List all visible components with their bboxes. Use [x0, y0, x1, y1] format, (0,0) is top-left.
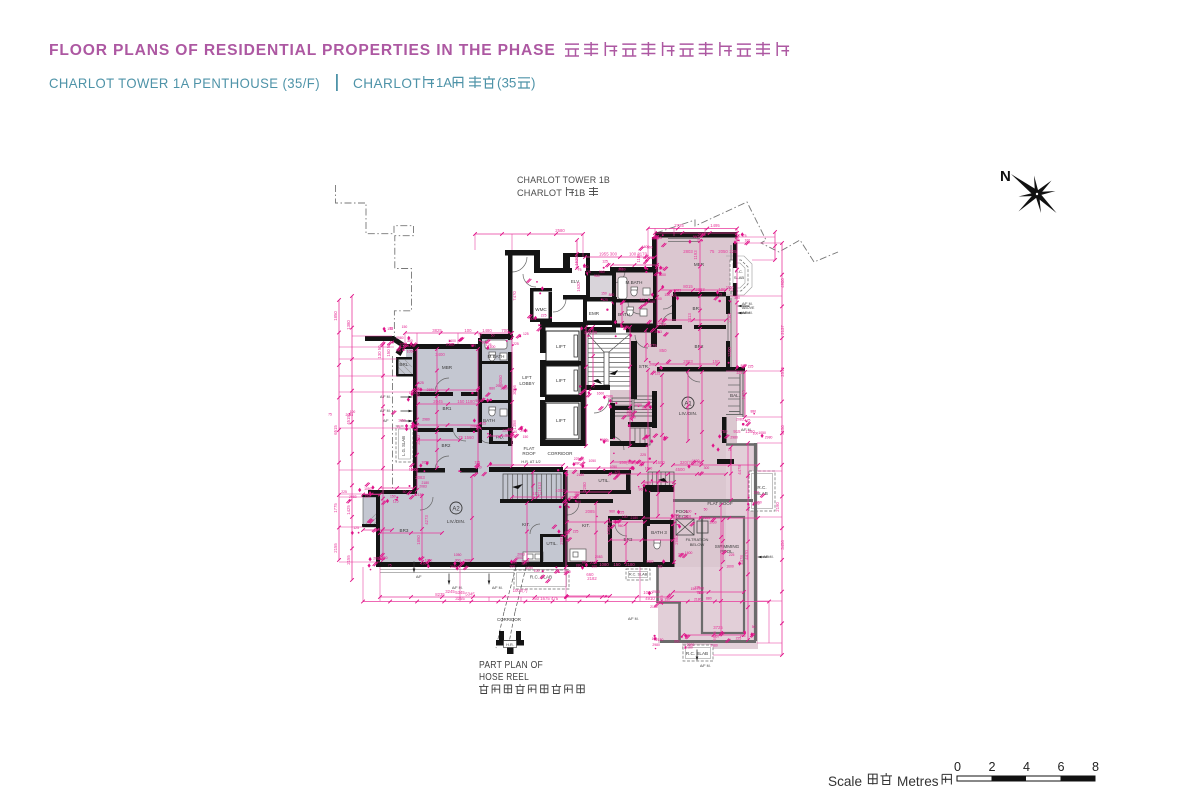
svg-text:50: 50 [704, 507, 708, 511]
svg-text:880: 880 [575, 461, 581, 465]
svg-text:Metres: Metres [897, 774, 939, 789]
svg-text:PART PLAN OF: PART PLAN OF [479, 660, 543, 671]
svg-text:125: 125 [671, 294, 677, 298]
svg-text:2980: 2980 [652, 590, 660, 594]
svg-text:2083: 2083 [590, 561, 598, 565]
svg-text:1050: 1050 [526, 566, 534, 570]
svg-text:1050: 1050 [589, 459, 597, 463]
svg-text:1050: 1050 [409, 391, 417, 395]
svg-text:75: 75 [478, 333, 482, 337]
svg-text:2155: 2155 [346, 555, 351, 565]
svg-text:2180: 2180 [648, 300, 656, 304]
svg-text:300: 300 [704, 466, 710, 470]
svg-text:300: 300 [407, 339, 413, 343]
svg-text:1000(?): 1000(?) [513, 588, 528, 593]
svg-text:75: 75 [328, 413, 332, 417]
svg-text:1850: 1850 [416, 535, 421, 545]
svg-text:225: 225 [729, 249, 737, 254]
svg-text:1050: 1050 [758, 431, 766, 435]
svg-text:2980: 2980 [496, 384, 504, 388]
svg-text:R.C.: R.C. [757, 485, 766, 490]
svg-text:MBR: MBR [442, 365, 453, 370]
svg-text:STR.: STR. [639, 364, 649, 369]
svg-text:N: N [1000, 168, 1011, 185]
svg-text:1913: 1913 [537, 482, 542, 492]
svg-text:225: 225 [480, 422, 486, 426]
svg-text:1600: 1600 [642, 245, 650, 249]
svg-text:150: 150 [658, 267, 664, 271]
svg-text:225: 225 [513, 342, 519, 346]
svg-text:2: 2 [989, 760, 996, 774]
svg-text:960: 960 [640, 298, 646, 302]
svg-text:880: 880 [674, 513, 680, 517]
svg-text:150: 150 [664, 598, 670, 602]
svg-text:225: 225 [573, 529, 579, 533]
svg-text:1050: 1050 [398, 419, 406, 423]
svg-text:1050: 1050 [425, 559, 433, 563]
svg-text:880: 880 [489, 387, 495, 391]
svg-text:LIV./DIN.: LIV./DIN. [447, 519, 465, 524]
svg-text:50: 50 [658, 564, 663, 569]
svg-text:1600: 1600 [726, 565, 734, 569]
svg-text:A/F M.: A/F M. [492, 586, 503, 590]
svg-text:3825: 3825 [432, 328, 442, 333]
svg-text:1050: 1050 [364, 487, 372, 491]
svg-text:850: 850 [659, 348, 667, 353]
svg-text:1620: 1620 [576, 282, 581, 292]
svg-text:125: 125 [486, 343, 492, 347]
svg-text:Scale: Scale [828, 774, 862, 789]
svg-text:BR2: BR2 [442, 443, 451, 448]
svg-text:ABOVE: ABOVE [742, 306, 755, 310]
svg-text:1480: 1480 [482, 328, 492, 333]
svg-text:H.R. AT 1/2: H.R. AT 1/2 [521, 460, 540, 464]
svg-text:50: 50 [752, 625, 756, 629]
svg-text:50: 50 [505, 434, 509, 438]
svg-text:100: 100 [350, 410, 356, 414]
svg-text:125: 125 [523, 332, 529, 336]
svg-text:CHARLOT: CHARLOT [517, 188, 562, 198]
svg-text:100: 100 [656, 297, 662, 301]
svg-text:75: 75 [718, 293, 722, 297]
svg-text:2183: 2183 [727, 313, 732, 323]
svg-text:125: 125 [602, 298, 608, 302]
svg-text:1413: 1413 [687, 313, 692, 323]
svg-text:2083: 2083 [595, 555, 603, 559]
svg-text:BR1: BR1 [443, 406, 452, 411]
svg-text:75: 75 [575, 267, 579, 271]
svg-text:75: 75 [591, 384, 595, 388]
svg-text:50: 50 [619, 267, 623, 271]
svg-text:960: 960 [475, 399, 481, 403]
svg-text:2983: 2983 [695, 287, 705, 292]
svg-text:75: 75 [630, 460, 634, 464]
svg-text:2980: 2980 [730, 436, 738, 440]
svg-text:880: 880 [706, 596, 712, 600]
svg-text:HOSE REEL: HOSE REEL [479, 672, 529, 683]
svg-text:4478: 4478 [737, 465, 742, 475]
svg-text:CHARLOT TOWER 1B: CHARLOT TOWER 1B [517, 175, 610, 185]
svg-text:BATH 3: BATH 3 [651, 530, 667, 535]
svg-text:960: 960 [639, 488, 645, 492]
svg-text:880: 880 [751, 409, 757, 413]
svg-text:2580: 2580 [555, 228, 565, 233]
svg-text:2045: 2045 [433, 399, 443, 404]
svg-text:2083: 2083 [464, 558, 472, 562]
svg-text:2980: 2980 [396, 336, 404, 340]
svg-text:250 1675 475: 250 1675 475 [532, 596, 559, 601]
svg-text:0: 0 [954, 760, 961, 774]
svg-text:R.C.: R.C. [735, 269, 743, 274]
svg-text:880: 880 [609, 293, 615, 297]
svg-text:960: 960 [575, 500, 581, 504]
svg-text:4910: 4910 [645, 596, 655, 601]
svg-text:4900: 4900 [780, 278, 785, 288]
svg-text:125: 125 [353, 526, 359, 530]
svg-text:H.R.: H.R. [506, 643, 514, 647]
svg-text:LIFT: LIFT [556, 378, 566, 384]
svg-text:2980: 2980 [674, 535, 679, 545]
svg-text:75: 75 [397, 349, 401, 353]
svg-text:EMR: EMR [589, 311, 600, 316]
svg-text:2083: 2083 [621, 325, 629, 329]
svg-text:2150: 2150 [780, 425, 785, 435]
svg-text:75: 75 [743, 234, 747, 238]
svg-text:225: 225 [640, 453, 646, 457]
svg-text:150: 150 [664, 293, 670, 297]
svg-text:A/F M.: A/F M. [380, 409, 391, 413]
svg-text:75: 75 [397, 425, 401, 429]
svg-text:100: 100 [534, 569, 540, 573]
svg-text:2050: 2050 [718, 249, 728, 254]
svg-text:50: 50 [403, 490, 407, 494]
svg-text:1850: 1850 [333, 311, 338, 321]
svg-text:225: 225 [656, 236, 662, 240]
svg-text:300: 300 [674, 639, 680, 643]
svg-text:915: 915 [733, 429, 741, 434]
svg-text:A/F M.: A/F M. [380, 395, 391, 399]
svg-text:LIFT: LIFT [522, 375, 532, 380]
svg-text:2190: 2190 [775, 502, 780, 512]
svg-text:2180: 2180 [577, 473, 585, 477]
svg-text:CHARLOT TOWER 1A PENTHOUSE (3: CHARLOT TOWER 1A PENTHOUSE (35/F) [49, 76, 320, 91]
svg-text:BRL.: BRL. [399, 362, 409, 367]
svg-text:225: 225 [574, 457, 580, 461]
svg-text:2083: 2083 [736, 418, 744, 422]
svg-text:8235: 8235 [435, 592, 445, 597]
svg-text:FLOOR PLANS OF RESIDENTIAL PRO: FLOOR PLANS OF RESIDENTIAL PROPERTIES IN… [49, 42, 556, 59]
svg-text:960: 960 [599, 270, 605, 274]
svg-text:2280: 2280 [582, 482, 587, 492]
svg-text:2100: 2100 [727, 347, 732, 357]
svg-text:2083: 2083 [349, 495, 357, 499]
svg-text:960: 960 [471, 343, 477, 347]
svg-text:225: 225 [642, 407, 648, 411]
svg-text:KIT.: KIT. [522, 522, 530, 527]
svg-text:75: 75 [728, 448, 732, 452]
svg-text:CORRIDOR: CORRIDOR [497, 617, 521, 622]
svg-text:1600: 1600 [684, 510, 692, 514]
svg-text:UTIL.: UTIL. [546, 541, 557, 546]
svg-text:125: 125 [602, 260, 608, 264]
svg-text:2180: 2180 [427, 388, 435, 392]
svg-text:225: 225 [697, 239, 703, 243]
svg-text:100: 100 [591, 564, 597, 568]
svg-text:5345: 5345 [455, 590, 465, 595]
svg-text:R.C. SLAB: R.C. SLAB [629, 573, 648, 577]
svg-text:150: 150 [622, 515, 628, 519]
svg-text:300: 300 [510, 565, 516, 569]
svg-text:880: 880 [741, 364, 747, 368]
svg-text:LOBBY: LOBBY [519, 381, 534, 386]
svg-text:150: 150 [691, 587, 697, 591]
svg-text:2982: 2982 [559, 535, 564, 545]
svg-text:1105: 1105 [636, 253, 641, 263]
svg-text:6515: 6515 [333, 425, 338, 435]
svg-text:8: 8 [1092, 760, 1099, 774]
svg-text:4500: 4500 [675, 467, 685, 472]
svg-text:125: 125 [655, 372, 661, 376]
svg-text:A2: A2 [452, 507, 460, 513]
svg-text:1B: 1B [574, 188, 585, 198]
svg-text:2180: 2180 [631, 516, 639, 520]
svg-text:225: 225 [740, 634, 746, 638]
svg-text:125: 125 [585, 270, 591, 274]
svg-text:2980: 2980 [652, 643, 660, 647]
svg-text:125: 125 [418, 381, 424, 385]
svg-text:150: 150 [365, 495, 371, 499]
svg-text:150: 150 [601, 292, 607, 296]
svg-text:2083: 2083 [470, 425, 478, 429]
svg-text:2083: 2083 [446, 342, 454, 346]
svg-text:): ) [531, 76, 535, 91]
svg-text:3400: 3400 [435, 352, 445, 357]
svg-text:2155: 2155 [333, 543, 338, 553]
svg-text:300: 300 [734, 296, 740, 300]
svg-text:2180: 2180 [416, 493, 424, 497]
svg-text:9150: 9150 [416, 387, 421, 397]
svg-text:300: 300 [455, 558, 461, 562]
svg-text:CHARLOT: CHARLOT [353, 76, 421, 91]
svg-text:BR3: BR3 [400, 528, 409, 533]
svg-text:1600: 1600 [684, 515, 692, 519]
svg-text:2510: 2510 [780, 367, 785, 377]
svg-text:2083: 2083 [404, 344, 412, 348]
svg-text:4: 4 [1023, 760, 1030, 774]
svg-text:3180: 3180 [416, 435, 421, 445]
svg-text:L.G. SLAB: L.G. SLAB [401, 436, 406, 456]
svg-text:150 50: 150 50 [386, 343, 391, 357]
svg-text:1600: 1600 [597, 392, 605, 396]
svg-text:LIFT: LIFT [556, 418, 566, 424]
svg-text:960: 960 [609, 510, 615, 514]
svg-text:1600: 1600 [645, 467, 653, 471]
svg-text:4380: 4380 [606, 525, 611, 535]
svg-text:1050: 1050 [407, 349, 415, 353]
svg-text:150: 150 [712, 359, 720, 364]
svg-text:2980: 2980 [605, 395, 613, 399]
svg-text:2980: 2980 [687, 643, 695, 647]
svg-text:UTIL.: UTIL. [598, 478, 609, 483]
svg-text:(35: (35 [497, 76, 516, 91]
svg-text:150: 150 [613, 562, 621, 567]
svg-text:1080: 1080 [599, 562, 609, 567]
svg-text:3725: 3725 [713, 625, 723, 630]
svg-text:2083: 2083 [584, 331, 592, 335]
svg-text:CORRIDOR: CORRIDOR [547, 451, 573, 456]
svg-text:960: 960 [594, 274, 600, 278]
svg-text:BAL.: BAL. [730, 393, 740, 398]
svg-text:1380: 1380 [346, 320, 351, 330]
svg-text:225: 225 [729, 553, 735, 557]
svg-text:1775: 1775 [333, 503, 338, 513]
svg-text:750: 750 [720, 429, 728, 434]
svg-text:150: 150 [390, 495, 396, 499]
svg-text:1050: 1050 [610, 465, 618, 469]
svg-text:150: 150 [402, 325, 408, 329]
svg-text:4273: 4273 [424, 515, 429, 525]
svg-text:2083: 2083 [419, 485, 427, 489]
svg-text:2980: 2980 [422, 417, 430, 421]
svg-text:50: 50 [491, 333, 495, 337]
svg-text:100: 100 [753, 432, 759, 436]
svg-text:1495: 1495 [710, 223, 720, 228]
svg-text:A/F M.: A/F M. [700, 664, 711, 668]
svg-text:2180: 2180 [659, 322, 667, 326]
svg-text:130 50: 130 50 [377, 345, 382, 359]
svg-text:2083: 2083 [415, 475, 425, 480]
svg-text:5345: 5345 [465, 592, 475, 597]
svg-text:3456: 3456 [780, 540, 785, 550]
svg-text:225: 225 [541, 314, 547, 318]
svg-text:2085: 2085 [585, 509, 595, 514]
svg-text:1193: 1193 [693, 250, 698, 260]
svg-text:SLAB: SLAB [734, 275, 745, 280]
svg-text:2180: 2180 [710, 644, 718, 648]
svg-text:2980: 2980 [697, 587, 705, 591]
svg-text:2980: 2980 [765, 435, 773, 439]
svg-text:150: 150 [512, 430, 518, 434]
svg-text:BATH: BATH [618, 312, 630, 317]
svg-text:LIFT: LIFT [556, 344, 566, 350]
svg-text:150: 150 [754, 490, 760, 494]
svg-text:2883: 2883 [683, 359, 693, 364]
svg-text:A/F: A/F [416, 575, 422, 579]
svg-text:1A: 1A [436, 75, 452, 90]
svg-text:225: 225 [737, 371, 743, 375]
svg-text:100: 100 [464, 328, 472, 333]
svg-text:BR3: BR3 [624, 537, 633, 542]
svg-text:1600: 1600 [685, 551, 693, 555]
svg-text:2180: 2180 [694, 597, 702, 601]
svg-text:150: 150 [387, 327, 393, 331]
svg-text:960: 960 [646, 559, 654, 564]
svg-text:75: 75 [710, 249, 715, 254]
svg-text:3245: 3245 [445, 589, 455, 594]
svg-text:1955 300: 1955 300 [599, 252, 618, 257]
svg-text:1425: 1425 [346, 505, 351, 515]
svg-text:7470: 7470 [512, 291, 517, 301]
svg-text:75: 75 [593, 331, 597, 335]
svg-text:A/F M.: A/F M. [628, 617, 639, 621]
svg-text:1083: 1083 [555, 488, 565, 493]
svg-text:A/F: A/F [383, 419, 389, 423]
svg-text:2803: 2803 [683, 249, 693, 254]
svg-text:WMC: WMC [535, 307, 547, 312]
svg-text:660: 660 [586, 572, 594, 577]
svg-text:300: 300 [698, 591, 704, 595]
svg-text:2083: 2083 [649, 362, 657, 366]
svg-text:75 1560: 75 1560 [458, 435, 474, 440]
svg-text:2180: 2180 [625, 562, 635, 567]
svg-text:8015: 8015 [683, 284, 693, 289]
svg-text:150: 150 [523, 435, 529, 439]
svg-text:1075: 1075 [647, 343, 657, 348]
svg-text:1600: 1600 [703, 516, 711, 520]
svg-text:2180: 2180 [422, 481, 430, 485]
svg-text:1050: 1050 [454, 553, 462, 557]
svg-text:3255: 3255 [455, 596, 465, 601]
svg-text:ROOF: ROOF [522, 451, 535, 456]
svg-text:1520: 1520 [574, 256, 579, 266]
svg-text:75: 75 [388, 563, 392, 567]
svg-text:1600: 1600 [409, 468, 417, 472]
svg-text:960: 960 [714, 635, 720, 639]
svg-text:150 1180: 150 1180 [457, 399, 475, 404]
svg-text:4470: 4470 [744, 550, 749, 560]
svg-text:1050: 1050 [726, 285, 734, 289]
svg-text:MBR: MBR [694, 262, 705, 267]
svg-text:M.BATH: M.BATH [487, 354, 504, 359]
svg-text:1050: 1050 [634, 403, 642, 407]
svg-text:2137: 2137 [780, 325, 785, 335]
svg-text:1425: 1425 [741, 390, 746, 400]
svg-text:960: 960 [618, 524, 624, 528]
svg-text:880: 880 [576, 564, 582, 568]
svg-text:KIT.: KIT. [582, 523, 590, 528]
svg-text:6: 6 [1058, 760, 1065, 774]
svg-text:2725: 2725 [674, 223, 684, 228]
svg-text:M.BATH: M.BATH [625, 280, 642, 285]
svg-text:225: 225 [341, 490, 347, 494]
svg-text:225: 225 [748, 365, 754, 369]
svg-text:2980: 2980 [520, 429, 528, 433]
svg-text:1600: 1600 [655, 460, 665, 465]
svg-text:BELOW: BELOW [690, 542, 705, 547]
